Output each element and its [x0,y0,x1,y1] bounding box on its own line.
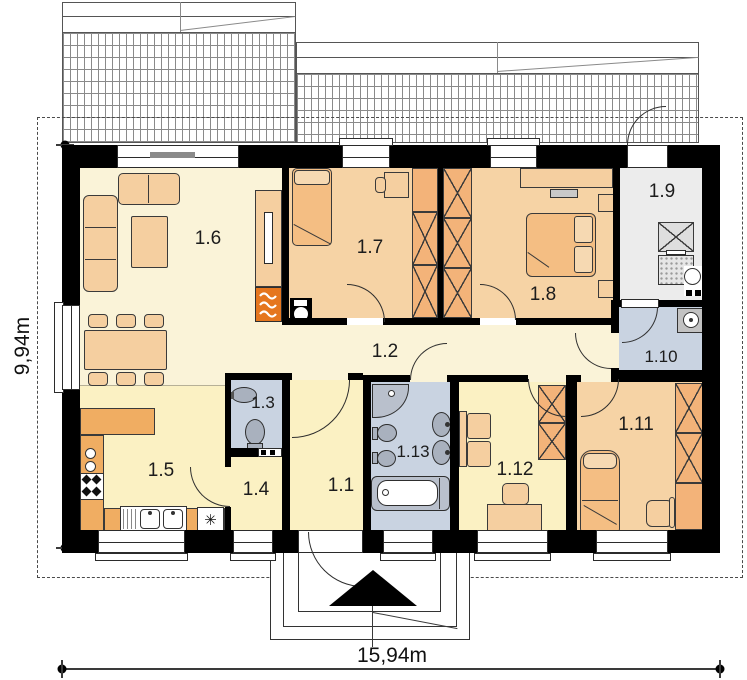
room-label-1-9: 1.9 [649,181,675,203]
wardrobe-111 [675,383,703,433]
bathtub-drain [382,489,389,496]
window-sill [593,553,671,561]
wall-113-right [450,375,459,530]
window-17 [342,145,390,168]
wall-113-left [363,375,371,530]
dishwasher: ✳ [197,507,224,532]
window-sill [380,553,436,561]
wardrobe-18 [443,268,472,318]
sofa-cushion-line [85,227,116,228]
floor-corridor-doorgap [611,333,619,368]
dining-chair [88,314,108,328]
wardrobe-17 [412,265,438,318]
dishwasher-symbol: ✳ [198,508,223,531]
wc-toilet [245,419,265,445]
window-sill [230,553,276,561]
fireplace [255,287,282,322]
bed-pillow [294,170,330,185]
window-kitchen [98,530,185,553]
wardrobe-111 [675,433,703,483]
entrance-arrow-icon [329,570,417,606]
bed-pillow [574,216,593,243]
wall-corridor-bottom [447,375,528,382]
dim-tick [719,660,721,678]
wardrobe-18 [443,168,472,218]
desk-112 [487,504,542,532]
window-sill [95,553,188,561]
room-label-1-2: 1.2 [372,341,398,363]
roof-fascia-left-2 [62,16,296,33]
wardrobe-112 [538,423,566,460]
dining-chair [116,372,136,386]
window-living-left [62,305,80,390]
utility-sink [684,268,701,285]
room-label-1-11: 1.11 [618,414,654,436]
toilet [377,424,397,442]
room-label-1-10: 1.10 [644,347,677,367]
wardrobe-17-shelf [412,168,438,212]
window-111 [596,530,668,553]
wall-18-19 [613,168,620,307]
dim-line-horizontal [62,668,720,670]
room-label-1-7: 1.7 [357,237,383,259]
bed-pillow [574,246,593,273]
chair-112 [502,483,529,505]
dim-tick [61,660,63,678]
floor-plan: 9,94m 15,94m [0,0,747,680]
fireplace-waves-icon [256,288,281,321]
sofa-left [83,195,118,292]
floor-corridor [288,325,611,382]
shower-drain [388,390,395,397]
dining-table [84,330,167,370]
room-label-1-13: 1.13 [396,442,429,462]
room-label-1-4: 1.4 [243,479,269,501]
wall-11-top [348,373,363,380]
vent-square [695,290,701,296]
water-heater-slot [294,300,307,306]
bathtub-divider [439,478,440,509]
room-label-1-3: 1.3 [251,393,275,413]
wardrobe-18 [443,218,472,268]
sink-drainer [123,509,137,529]
bed-fold-line [582,500,618,501]
sofa-top [118,173,180,205]
sofa-112-seat [467,441,491,467]
wall-exterior-right [702,145,720,553]
sofa-112-seat [467,413,491,439]
dining-chair [144,372,164,386]
cabinet-111 [675,483,703,530]
bed-pillow [583,453,617,469]
wall-19-110 [658,300,703,307]
roof-divider-right [497,42,498,73]
window-113 [383,530,433,553]
wall-14-left [225,507,231,532]
washing-machine [658,222,694,252]
dim-label-height: 9,94m [11,317,35,375]
room-label-1-8: 1.8 [530,284,556,306]
roof-divider-left [180,2,181,32]
vent-square [270,450,275,455]
wall-112-111 [566,382,577,530]
vent-square [261,450,266,455]
dining-chair [88,372,108,386]
wall-corridor-110 [611,300,619,333]
room-label-1-5: 1.5 [148,460,174,482]
roof-fascia-left-1 [62,2,296,17]
computer-monitor [550,189,578,198]
window-14 [233,530,273,553]
bidet [377,450,396,467]
wall-13-11 [282,373,290,532]
door-19-leaf [627,145,668,168]
room-label-1-6: 1.6 [195,228,221,250]
window-18 [490,145,537,168]
coffee-table [131,216,168,268]
chair-17 [375,177,386,193]
dim-label-width: 15,94m [357,644,427,668]
sofa-cushion-line [85,259,116,260]
wall-corridor-top [282,318,347,325]
sink-tap-dot [148,511,152,515]
kitchen-jar [85,461,96,472]
wall-110-111 [619,370,720,382]
kitchen-counter-top [80,408,155,435]
wall-13-top [225,373,292,380]
kitchen-jar [85,448,96,459]
desk-18 [520,168,613,188]
wall-16-17 [282,168,289,325]
desk-17 [384,172,409,198]
wall-13-bottom [225,448,258,457]
tv-cabinet-slot [264,212,273,264]
wall-corridor-bottom [566,375,581,382]
sink-tap-dot [171,511,175,515]
sofa-112-back [459,411,467,467]
dining-chair [116,314,136,328]
sofa-cushion-line [148,175,149,203]
dining-chair [144,314,164,328]
wall-corridor-top [383,318,480,325]
wall-corridor-top [516,318,611,325]
room-label-1-12: 1.12 [497,459,534,481]
room-label-1-1: 1.1 [328,475,354,497]
window-sill [474,553,551,561]
wardrobe-17 [412,212,438,265]
boiler-dot [689,318,693,322]
window-112 [477,530,548,553]
wall-17-18 [438,168,443,318]
terrace-door-blind [150,152,195,158]
vent-square [686,290,692,296]
